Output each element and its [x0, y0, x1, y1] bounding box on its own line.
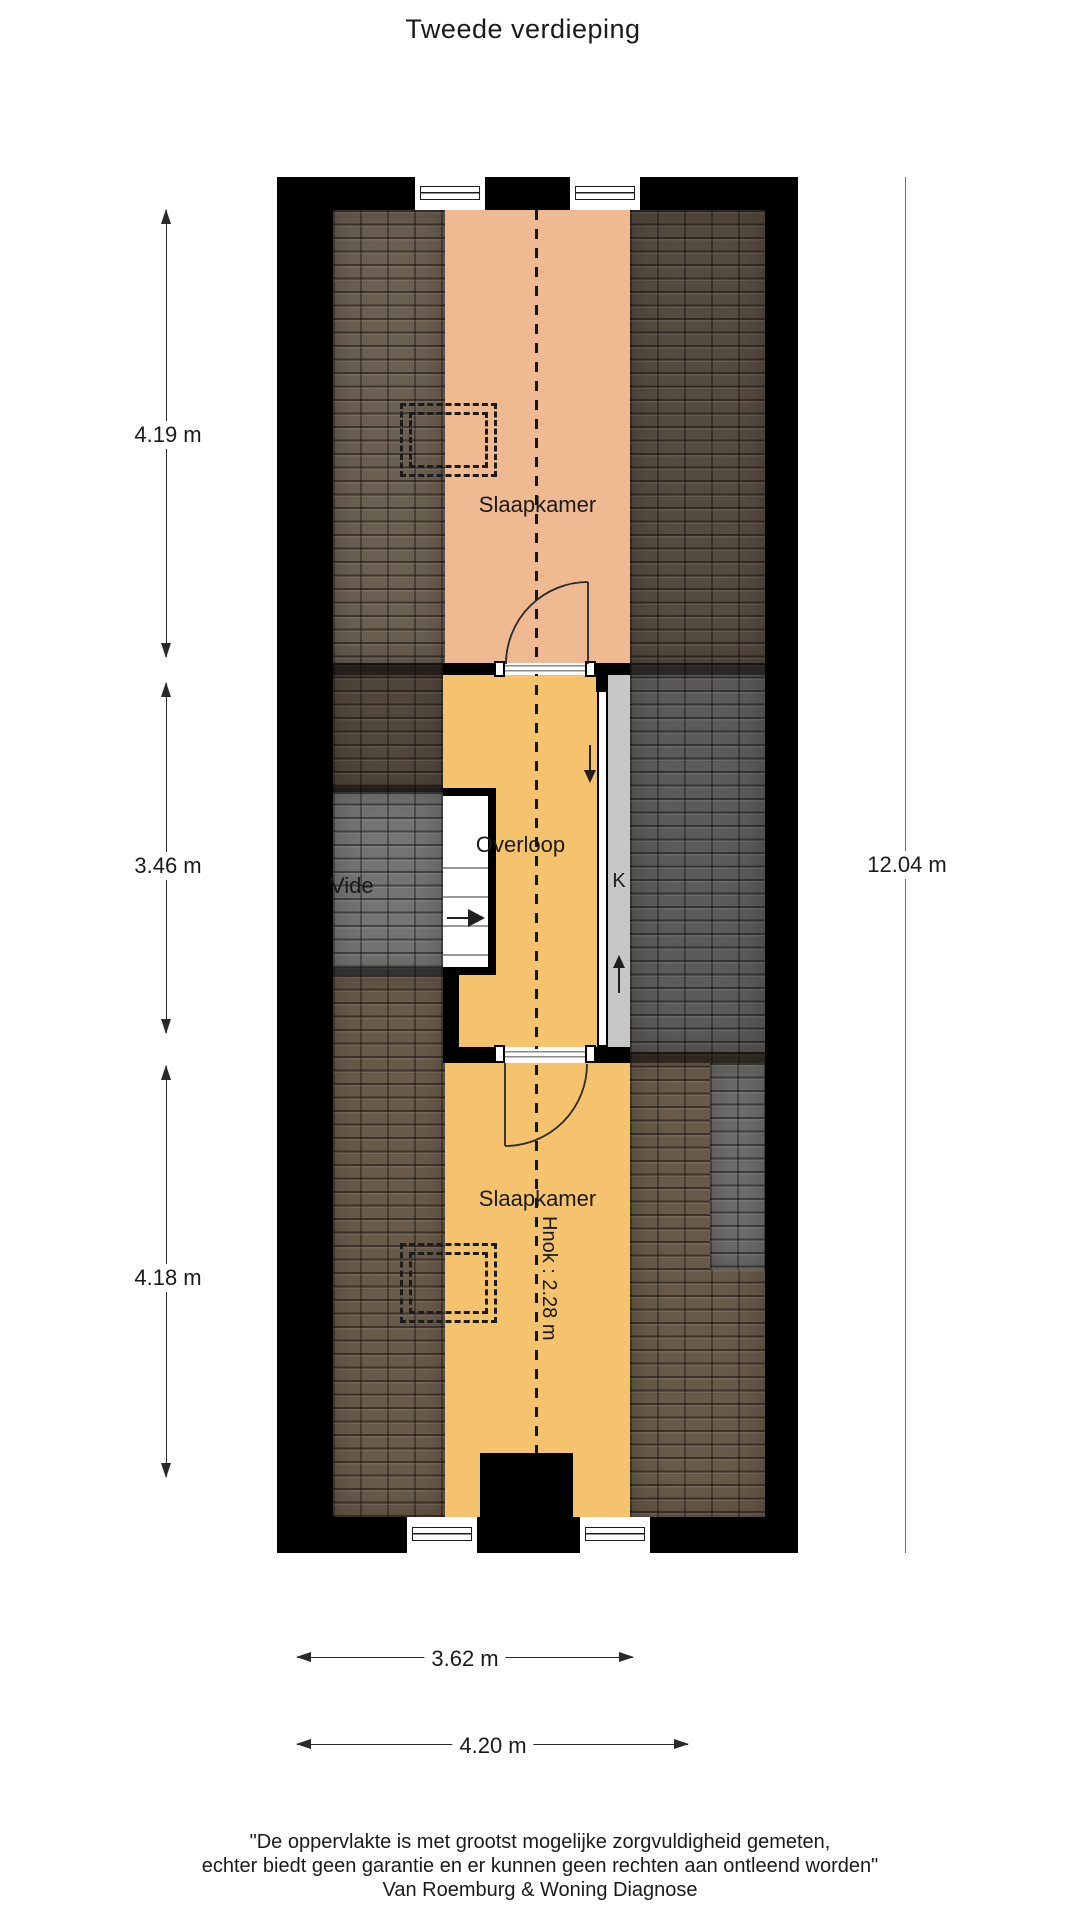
dimension-line-left-3: 4.18 m: [166, 1066, 167, 1477]
chimney: [480, 1453, 573, 1519]
stair-direction-arrow: [447, 917, 468, 919]
disclaimer: "De oppervlakte is met grootst mogelijke…: [0, 1830, 1080, 1902]
dimension-line-left-1: 4.19 m: [166, 210, 167, 657]
roof-tiles-bottom-right-gray-band: [710, 1063, 765, 1270]
stairs-down-arrowhead: [584, 770, 596, 783]
door-jamb: [585, 1045, 596, 1063]
dimension-label: 4.20 m: [452, 1732, 533, 1760]
interior-wall-bottom: [459, 1047, 496, 1063]
skylight-outline-bottom-inner: [409, 1252, 488, 1314]
door-threshold-bottom: [505, 1049, 585, 1060]
label-vide: Vide: [330, 873, 374, 899]
door-jamb: [494, 661, 505, 677]
stair-direction-arrowhead: [468, 909, 485, 927]
dimension-line-bottom-2: 4.20 m: [297, 1744, 688, 1745]
staircase: [443, 796, 488, 967]
skylight-outline-top-inner: [409, 412, 488, 468]
railing-post: [596, 675, 608, 692]
window: [407, 1517, 477, 1553]
roof-seam: [333, 663, 443, 675]
page-title: Tweede verdieping: [0, 14, 1046, 45]
disclaimer-line-1: "De oppervlakte is met grootst mogelijke…: [0, 1830, 1080, 1854]
disclaimer-line-3: Van Roemburg & Woning Diagnose: [0, 1878, 1080, 1902]
wall-left: [277, 177, 333, 1553]
disclaimer-line-2: echter biedt geen garantie en er kunnen …: [0, 1854, 1080, 1878]
door-jamb: [494, 1045, 505, 1063]
closet-up-arrowhead: [613, 955, 625, 968]
label-bedroom-bottom: Slaapkamer: [445, 1186, 630, 1212]
roof-tiles-mid-left: [333, 663, 445, 790]
floor-plan-page: Tweede verdieping: [0, 0, 1080, 1920]
dimension-line-left-2: 3.46 m: [166, 683, 167, 1033]
wall-right: [765, 177, 798, 1553]
window: [580, 1517, 650, 1553]
dimension-line-right: 12.04 m: [905, 177, 906, 1553]
interior-wall-top: [596, 663, 630, 675]
wall-top: [277, 177, 798, 210]
roof-seam: [630, 1052, 765, 1063]
roof-tiles-mid-right: [630, 663, 765, 1052]
wall-bottom: [277, 1517, 798, 1553]
roof-seam: [630, 663, 765, 675]
dimension-label: 3.62 m: [424, 1645, 505, 1673]
door-swing-top: [505, 581, 589, 665]
dimension-label: 4.18 m: [127, 1264, 208, 1292]
interior-wall-bottom: [596, 1047, 630, 1063]
label-closet: K: [608, 870, 630, 893]
window: [570, 177, 640, 210]
interior-wall-top: [443, 663, 496, 675]
label-headroom-note: Hnok : 2.28 m: [537, 1216, 560, 1341]
closet-up-arrow: [618, 967, 620, 993]
interior-wall-stub: [443, 975, 459, 1063]
roof-seam: [333, 967, 443, 975]
label-bedroom-top: Slaapkamer: [445, 492, 630, 518]
stair-wall-right: [488, 788, 496, 975]
door-swing-bottom: [504, 1063, 588, 1147]
dimension-label: 12.04 m: [860, 851, 954, 879]
stair-wall-bottom: [443, 967, 496, 975]
stairs-down-arrow: [589, 745, 591, 771]
dimension-label: 4.19 m: [127, 421, 208, 449]
roof-seam: [333, 786, 443, 794]
window: [415, 177, 485, 210]
dimension-line-bottom-1: 3.62 m: [297, 1657, 633, 1658]
label-landing: Overloop: [443, 832, 598, 858]
roof-tiles-top-right: [630, 210, 765, 663]
stair-railing: [597, 675, 608, 1047]
dimension-label: 3.46 m: [127, 852, 208, 880]
